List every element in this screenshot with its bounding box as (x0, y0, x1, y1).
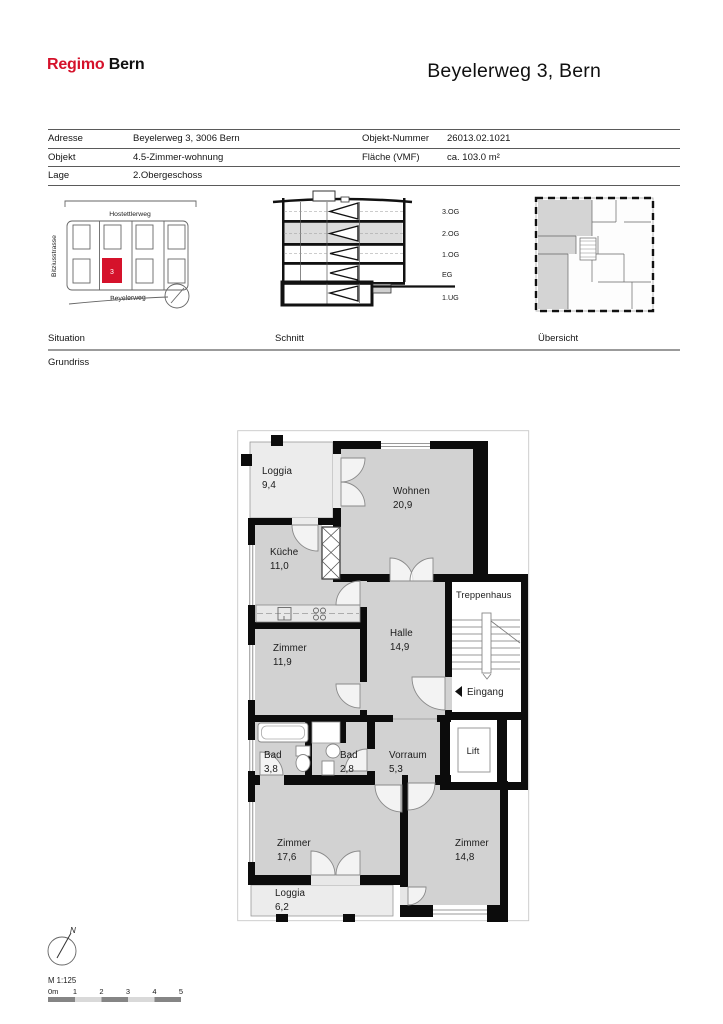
room-name: Küche (270, 547, 299, 558)
shower-niche (312, 722, 340, 743)
scale-bar: M 1:125 0m 1 2 3 4 5 (48, 975, 193, 1005)
overview-plan (528, 192, 663, 316)
scale-tick: 0m (48, 987, 58, 996)
toilet (296, 755, 310, 772)
room-area: 3,8 (264, 764, 278, 775)
scale-tick: 4 (152, 987, 156, 996)
room-name: Eingang (467, 687, 504, 698)
north-label: N (70, 926, 76, 935)
floorplan: Loggia 9,4 Wohnen 20,9 Küche 11,0 Zimmer… (237, 430, 530, 922)
building-footprints (73, 225, 185, 283)
row-value: Beyelerweg 3, 3006 Bern (133, 133, 362, 144)
section-drawing (273, 191, 455, 305)
schnitt-label: Schnitt (275, 333, 304, 344)
row-label: Objekt (48, 152, 133, 163)
row-label: Lage (48, 170, 133, 181)
room-area: 11,0 (270, 561, 289, 572)
room-name: Treppenhaus (456, 590, 512, 600)
floor-label: 2.OG (442, 229, 460, 238)
grundriss-label: Grundriss (48, 357, 89, 368)
row-value: ca. 103.0 m² (447, 152, 680, 163)
row-value: 2.Obergeschoss (133, 170, 362, 181)
room-name: Wohnen (393, 486, 430, 497)
room-area: 14,9 (390, 642, 409, 653)
room-area: 9,4 (262, 480, 276, 491)
scale-ticks: 0m 1 2 3 4 5 (48, 987, 183, 996)
room-name: Loggia (262, 466, 292, 477)
street-label-left: Bitziusstrasse (51, 235, 58, 277)
room-area: 17,6 (277, 852, 297, 863)
table-row: Lage 2.Obergeschoss (48, 167, 680, 186)
overview-drawing (536, 198, 653, 311)
floor-labels: 3.OG 2.OG 1.OG EG 1.UG (442, 207, 460, 302)
compass-circle (48, 937, 76, 965)
room-area: 5,3 (389, 764, 403, 775)
building-number-marker: 3 (110, 269, 114, 276)
scale-tick: 5 (179, 987, 183, 996)
situation-map: Hostettlerweg 3 Bitziusstrasse Beyelerwe… (40, 190, 210, 315)
room-area: 20,9 (393, 500, 412, 511)
row-value: 26013.02.1021 (447, 133, 680, 144)
page-title: Beyelerweg 3, Bern (427, 60, 601, 83)
section-diagram: 3.OG 2.OG 1.OG EG 1.UG (270, 185, 485, 320)
room-name: Zimmer (277, 838, 311, 849)
logo-secondary: Bern (109, 56, 145, 73)
kitchen-counter (256, 605, 360, 622)
situation-label: Situation (48, 333, 85, 344)
table-row: Objekt 4.5-Zimmer-wohnung Fläche (VMF) c… (48, 149, 680, 168)
room-area: 2,8 (340, 764, 354, 775)
floor-label: 3.OG (442, 207, 460, 216)
section-divider (48, 349, 680, 351)
floor-label: 1.UG (442, 293, 459, 302)
shaft (322, 527, 340, 579)
sink (322, 761, 334, 775)
row-label: Fläche (VMF) (362, 152, 447, 163)
uebersicht-label: Übersicht (538, 333, 578, 344)
street-label-top: Hostettlerweg (109, 211, 151, 218)
room-name: Bad (264, 750, 282, 761)
company-logo: Regimo Bern (47, 56, 144, 74)
toilet (326, 744, 340, 758)
floor-label: 1.OG (442, 250, 460, 259)
scale-segments (48, 997, 181, 1002)
scale-tick: 1 (73, 987, 77, 996)
room-name: Vorraum (389, 750, 427, 761)
north-compass: N (45, 924, 93, 972)
room-name: Lift (467, 746, 480, 756)
room-name: Bad (340, 750, 358, 761)
scale-tick: 3 (126, 987, 130, 996)
room-name: Halle (390, 628, 413, 639)
room-area: 14,8 (455, 852, 475, 863)
scale-tick: 2 (99, 987, 103, 996)
room-name: Zimmer (455, 838, 489, 849)
table-row: Adresse Beyelerweg 3, 3006 Bern Objekt-N… (48, 130, 680, 149)
logo-primary: Regimo (47, 56, 104, 73)
floor-label: EG (442, 270, 453, 279)
row-label: Adresse (48, 133, 133, 144)
scale-label: M 1:125 (48, 976, 77, 985)
row-value: 4.5-Zimmer-wohnung (133, 152, 362, 163)
object-info-table: Adresse Beyelerweg 3, 3006 Bern Objekt-N… (48, 129, 680, 186)
room-area: 11,9 (273, 657, 292, 668)
row-label: Objekt-Nummer (362, 133, 447, 144)
room-name: Loggia (275, 888, 305, 899)
room-area: 6,2 (275, 902, 289, 913)
room-name: Zimmer (273, 643, 307, 654)
document-page: Regimo Bern Beyelerweg 3, Bern Adresse B… (0, 0, 723, 1024)
